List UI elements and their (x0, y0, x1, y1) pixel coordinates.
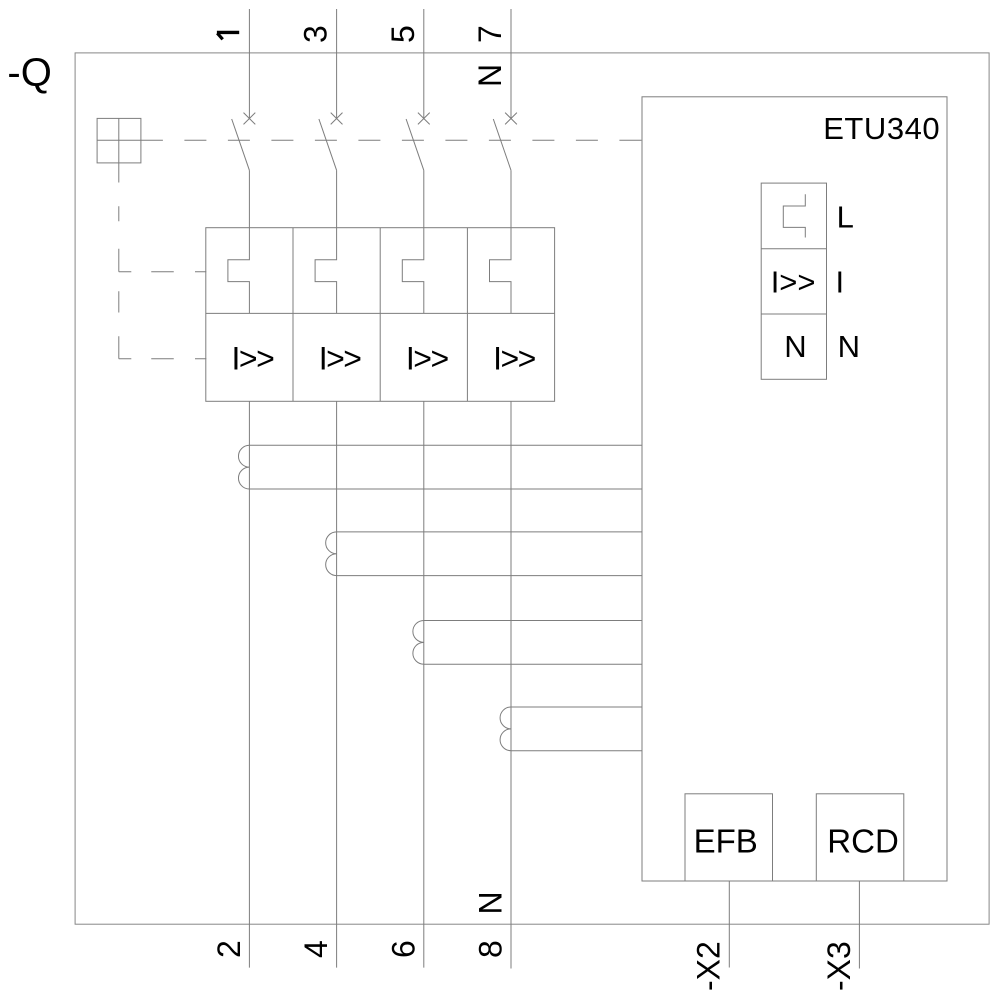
svg-text:2: 2 (211, 940, 247, 958)
svg-text:ETU340: ETU340 (823, 111, 940, 146)
svg-text:EFB: EFB (694, 823, 758, 860)
svg-text:N: N (472, 64, 508, 87)
svg-text:I>>: I>> (319, 341, 362, 377)
svg-text:I>>: I>> (406, 341, 449, 377)
svg-text:N: N (838, 329, 860, 364)
svg-text:3: 3 (298, 25, 334, 43)
svg-text:6: 6 (385, 940, 421, 958)
svg-text:N: N (473, 891, 509, 914)
svg-text:7: 7 (472, 25, 508, 43)
svg-text:RCD: RCD (827, 823, 899, 860)
svg-text:I>>: I>> (232, 341, 275, 377)
svg-text:-Q: -Q (7, 51, 51, 95)
svg-text:8: 8 (473, 940, 509, 958)
svg-text:5: 5 (385, 25, 421, 43)
svg-text:I>>: I>> (771, 265, 816, 300)
svg-text:I>>: I>> (493, 341, 536, 377)
svg-text:-X3: -X3 (821, 941, 857, 991)
svg-text:4: 4 (298, 940, 334, 958)
svg-text:L: L (837, 199, 854, 234)
svg-text:N: N (784, 329, 806, 364)
svg-text:I: I (836, 265, 845, 300)
svg-text:-X2: -X2 (691, 941, 727, 991)
